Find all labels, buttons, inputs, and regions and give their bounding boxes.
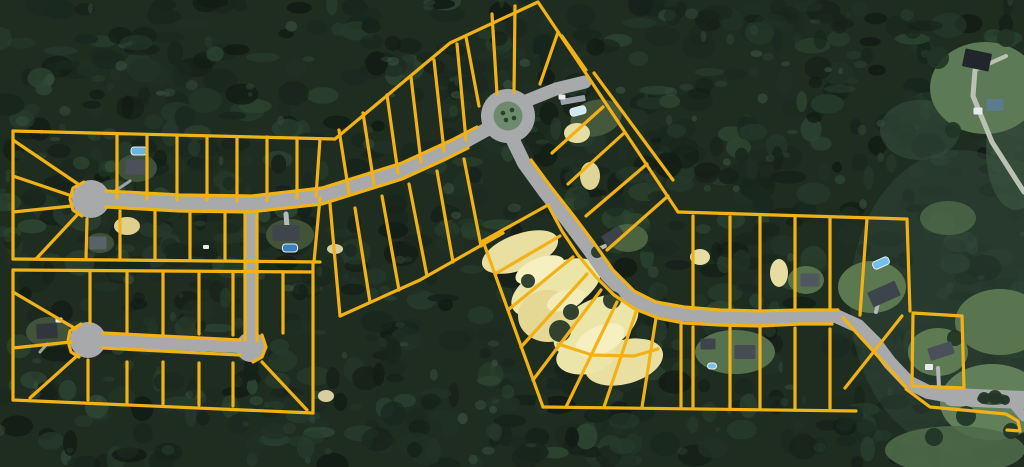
forest-texture	[221, 137, 250, 150]
forest-texture	[128, 58, 161, 82]
forest-texture	[588, 409, 611, 422]
forest-texture	[770, 171, 806, 184]
forest-texture	[189, 157, 214, 172]
forest-texture	[479, 348, 491, 358]
concrete-pad	[203, 245, 209, 249]
forest-texture	[147, 4, 165, 24]
forest-texture	[205, 36, 213, 47]
forest-texture	[736, 284, 757, 293]
tree-cluster	[693, 294, 707, 308]
forest-texture	[666, 124, 686, 138]
forest-texture	[609, 457, 622, 466]
forest-texture	[645, 130, 661, 139]
forest-texture	[783, 152, 790, 157]
forest-texture	[144, 114, 163, 129]
forest-texture	[74, 415, 92, 427]
forest-texture	[796, 91, 807, 112]
forest-texture	[385, 36, 401, 51]
forest-texture	[222, 387, 251, 398]
forest-texture	[689, 24, 712, 44]
forest-texture	[669, 138, 699, 155]
forest-texture	[170, 312, 176, 322]
forest-texture	[33, 381, 38, 390]
forest-texture	[490, 424, 501, 442]
forest-texture	[526, 443, 537, 448]
forest-texture	[383, 437, 396, 445]
forest-texture	[811, 94, 844, 113]
forest-texture	[821, 333, 850, 358]
lot-boundary-line	[514, 6, 515, 92]
forest-texture	[429, 410, 460, 425]
forest-texture	[188, 140, 201, 156]
forest-texture	[331, 23, 345, 36]
forest-texture	[733, 185, 740, 191]
forest-texture	[22, 189, 46, 208]
forest-texture	[665, 87, 677, 97]
forest-texture	[305, 419, 330, 427]
forest-texture	[836, 418, 852, 431]
lot-boundary-line	[86, 219, 87, 259]
forest-texture	[746, 158, 758, 180]
forest-texture	[787, 253, 794, 262]
concrete-pad	[925, 364, 933, 370]
forest-texture	[490, 366, 496, 377]
forest-texture	[502, 358, 515, 368]
forest-texture	[30, 371, 39, 379]
forest-texture	[460, 265, 483, 273]
forest-texture	[438, 299, 453, 311]
forest-texture	[88, 3, 93, 13]
forest-texture	[44, 46, 77, 55]
forest-texture	[167, 41, 183, 66]
forest-texture	[395, 256, 406, 264]
forest-texture	[115, 318, 136, 331]
forest-texture	[685, 8, 698, 19]
forest-texture	[793, 32, 802, 43]
forest-texture	[789, 434, 817, 460]
forest-texture	[468, 306, 494, 324]
forest-texture	[695, 68, 725, 76]
forest-texture	[766, 154, 775, 162]
forest-texture	[32, 358, 41, 364]
forest-texture	[5, 173, 10, 183]
sand-clearing	[770, 259, 788, 287]
forest-texture	[703, 5, 733, 20]
forest-texture	[874, 430, 892, 441]
forest-texture	[614, 423, 623, 434]
grass-clearing	[920, 201, 976, 235]
forest-texture	[770, 235, 796, 255]
forest-texture	[100, 217, 109, 226]
forest-texture	[750, 25, 759, 35]
forest-texture	[138, 87, 150, 102]
forest-texture	[858, 125, 866, 136]
forest-texture	[454, 75, 458, 86]
forest-texture	[676, 1, 686, 17]
forest-texture	[105, 161, 116, 173]
forest-texture	[666, 115, 672, 125]
swimming-pool	[708, 363, 717, 369]
forest-texture	[698, 439, 728, 458]
forest-texture	[469, 455, 478, 465]
forest-texture	[156, 366, 161, 374]
sand-clearing	[114, 217, 140, 235]
forest-texture	[270, 339, 290, 354]
forest-texture	[783, 297, 816, 310]
forest-texture	[787, 130, 798, 134]
forest-texture	[278, 81, 309, 105]
tree-cluster	[897, 252, 913, 268]
forest-texture	[859, 199, 867, 209]
forest-texture	[679, 91, 713, 111]
forest-texture	[477, 328, 506, 342]
island-tree	[512, 116, 517, 121]
forest-texture	[234, 318, 243, 329]
forest-texture	[59, 106, 70, 116]
forest-texture	[715, 428, 719, 432]
forest-texture	[702, 402, 717, 423]
forest-texture	[628, 208, 634, 219]
forest-texture	[59, 380, 76, 400]
forest-texture	[245, 185, 250, 194]
forest-texture	[24, 104, 40, 116]
forest-texture	[864, 13, 887, 25]
forest-texture	[122, 95, 134, 118]
forest-texture	[603, 191, 625, 216]
island-tree	[510, 108, 515, 113]
forest-texture	[174, 19, 209, 28]
forest-texture	[692, 116, 697, 122]
forest-texture	[386, 374, 404, 382]
forest-texture	[243, 421, 249, 427]
forest-texture	[50, 137, 61, 141]
tree-cluster	[1000, 395, 1010, 405]
forest-texture	[438, 330, 470, 351]
island-tree	[504, 118, 509, 123]
forest-texture	[430, 369, 438, 380]
forest-texture	[704, 185, 712, 192]
forest-texture	[796, 183, 830, 205]
forest-texture	[334, 393, 348, 411]
forest-texture	[535, 139, 548, 144]
forest-texture	[247, 379, 258, 395]
forest-texture	[861, 437, 875, 462]
forest-texture	[44, 0, 76, 19]
forest-texture	[189, 88, 222, 113]
forest-texture	[344, 244, 357, 257]
forest-texture	[793, 421, 804, 431]
forest-texture	[120, 35, 153, 50]
road	[88, 340, 250, 347]
forest-texture	[824, 67, 832, 72]
forest-texture	[178, 293, 183, 298]
forest-texture	[66, 229, 70, 234]
forest-texture	[342, 352, 347, 359]
forest-texture	[246, 83, 254, 89]
forest-texture	[489, 406, 497, 414]
forest-texture	[807, 112, 822, 123]
forest-texture	[17, 219, 46, 233]
forest-texture	[423, 4, 434, 10]
forest-texture	[724, 68, 746, 79]
forest-texture	[701, 31, 707, 42]
forest-texture	[749, 67, 759, 76]
forest-texture	[629, 51, 649, 66]
forest-texture	[698, 379, 710, 393]
forest-texture	[616, 87, 626, 94]
forest-texture	[900, 9, 913, 21]
forest-texture	[452, 157, 483, 167]
forest-texture	[420, 394, 441, 408]
forest-texture	[780, 398, 788, 407]
forest-texture	[271, 155, 286, 174]
roundabout-island	[494, 102, 523, 131]
forest-texture	[156, 91, 165, 96]
tree-cluster	[636, 325, 650, 339]
forest-texture	[407, 442, 422, 457]
forest-texture	[89, 90, 104, 100]
forest-texture	[617, 138, 628, 161]
forest-texture	[908, 20, 942, 31]
forest-texture	[695, 224, 710, 233]
forest-texture	[366, 269, 387, 284]
forest-texture	[781, 61, 790, 66]
forest-texture	[92, 75, 106, 82]
forest-texture	[307, 87, 339, 104]
forest-texture	[449, 106, 458, 117]
house	[273, 225, 300, 241]
forest-texture	[835, 175, 846, 184]
forest-texture	[175, 106, 195, 128]
forest-texture	[103, 377, 115, 382]
forest-texture	[405, 345, 416, 350]
tree-cluster	[988, 390, 1002, 404]
forest-texture	[206, 46, 223, 61]
forest-texture	[371, 120, 385, 131]
forest-texture	[219, 156, 224, 165]
forest-texture	[468, 167, 482, 183]
forest-texture	[492, 399, 499, 404]
forest-texture	[2, 196, 7, 203]
forest-texture	[305, 457, 311, 464]
tree-cluster	[521, 274, 535, 288]
forest-texture	[577, 52, 589, 57]
forest-texture	[325, 448, 332, 455]
forest-texture	[852, 1, 868, 17]
forest-texture	[648, 283, 667, 300]
forest-texture	[187, 391, 193, 400]
forest-texture	[665, 260, 691, 270]
forest-texture	[133, 423, 153, 444]
forest-texture	[644, 26, 680, 47]
forest-texture	[94, 282, 120, 292]
tree-cluster	[549, 320, 571, 342]
forest-texture	[283, 423, 296, 435]
house	[987, 99, 1004, 111]
sand-clearing	[580, 162, 600, 190]
forest-texture	[687, 416, 698, 433]
forest-texture	[286, 21, 297, 32]
forest-texture	[707, 19, 720, 29]
forest-texture	[877, 152, 884, 161]
forest-texture	[739, 124, 767, 141]
forest-texture	[344, 273, 350, 282]
forest-texture	[860, 37, 881, 46]
forest-texture	[459, 218, 485, 227]
subdivision-aerial-svg[interactable]	[0, 0, 1024, 467]
forest-texture	[818, 14, 835, 24]
forest-texture	[482, 447, 495, 455]
forest-texture	[219, 112, 246, 120]
forest-texture	[727, 420, 757, 440]
forest-texture	[107, 82, 114, 91]
forest-texture	[286, 57, 305, 78]
house	[701, 339, 716, 350]
forest-texture	[130, 299, 147, 310]
forest-texture	[695, 170, 718, 183]
forest-texture	[488, 340, 499, 347]
forest-texture	[715, 81, 728, 87]
forest-texture	[361, 311, 394, 333]
forest-texture	[381, 401, 407, 426]
forest-texture	[42, 77, 53, 87]
forest-texture	[443, 183, 454, 194]
swimming-pool	[283, 244, 298, 252]
forest-texture	[1, 415, 33, 436]
forest-texture	[451, 212, 461, 220]
forest-texture	[186, 80, 198, 90]
forest-texture	[492, 360, 498, 367]
forest-texture	[196, 411, 209, 425]
forest-texture	[361, 19, 380, 34]
forest-texture	[559, 160, 578, 170]
driveway	[938, 368, 939, 387]
forest-texture	[246, 53, 280, 62]
forest-texture	[67, 448, 74, 453]
forest-texture	[143, 317, 156, 327]
tree-cluster	[927, 47, 949, 69]
forest-texture	[4, 234, 12, 242]
house	[735, 345, 756, 359]
forest-texture	[833, 19, 854, 28]
forest-texture	[159, 409, 172, 414]
forest-texture	[809, 19, 820, 24]
forest-texture	[644, 89, 648, 100]
forest-texture	[751, 50, 763, 57]
forest-texture	[313, 330, 326, 335]
forest-texture	[658, 370, 691, 393]
forest-texture	[679, 84, 693, 91]
sand-clearing	[318, 390, 334, 402]
forest-texture	[223, 44, 249, 55]
forest-texture	[83, 101, 101, 109]
forest-texture	[303, 56, 315, 61]
forest-texture	[248, 92, 252, 96]
swimming-pool	[131, 147, 147, 155]
forest-texture	[609, 413, 640, 430]
forest-texture	[204, 387, 223, 401]
forest-texture	[309, 415, 315, 423]
forest-texture	[740, 393, 758, 418]
forest-texture	[161, 238, 179, 256]
satellite-plat-map[interactable]	[0, 0, 1024, 467]
concrete-pad	[559, 95, 566, 100]
forest-texture	[754, 14, 788, 31]
forest-texture	[74, 34, 98, 44]
forest-texture	[534, 54, 539, 58]
forest-texture	[762, 53, 774, 61]
forest-texture	[846, 51, 860, 60]
forest-texture	[216, 223, 239, 234]
forest-texture	[668, 221, 685, 231]
forest-texture	[223, 176, 235, 190]
forest-texture	[824, 85, 856, 93]
forest-texture	[854, 61, 867, 68]
forest-texture	[838, 68, 842, 75]
forest-texture	[802, 395, 806, 405]
forest-texture	[317, 266, 323, 277]
forest-texture	[250, 396, 264, 405]
forest-texture	[586, 39, 604, 56]
forest-texture	[832, 162, 842, 173]
forest-texture	[752, 196, 774, 212]
forest-texture	[387, 57, 399, 66]
forest-texture	[550, 117, 561, 140]
forest-texture	[194, 221, 206, 227]
forest-texture	[503, 80, 513, 90]
forest-texture	[366, 51, 388, 75]
forest-texture	[430, 211, 442, 223]
forest-texture	[247, 434, 264, 458]
forest-texture	[846, 12, 851, 17]
forest-texture	[368, 34, 374, 40]
forest-texture	[475, 400, 486, 410]
house	[36, 323, 58, 339]
forest-texture	[648, 266, 659, 277]
tree-cluster	[925, 428, 943, 446]
forest-texture	[735, 148, 748, 164]
forest-texture	[507, 203, 521, 212]
forest-texture	[47, 144, 70, 158]
forest-texture	[718, 168, 738, 185]
forest-texture	[886, 154, 896, 172]
forest-texture	[813, 443, 826, 453]
forest-texture	[779, 361, 783, 373]
forest-texture	[38, 432, 64, 450]
forest-texture	[723, 159, 731, 166]
forest-texture	[650, 432, 680, 456]
forest-texture	[341, 284, 365, 296]
forest-texture	[868, 65, 886, 76]
forest-texture	[351, 403, 361, 411]
forest-texture	[379, 338, 388, 347]
forest-texture	[88, 47, 117, 61]
forest-texture	[753, 222, 780, 237]
forest-texture	[201, 393, 206, 403]
forest-texture	[386, 338, 401, 363]
forest-texture	[814, 30, 827, 50]
forest-texture	[519, 59, 530, 67]
forest-texture	[188, 280, 221, 289]
tree-cluster	[563, 304, 579, 320]
forest-texture	[710, 137, 724, 157]
forest-texture	[235, 376, 242, 387]
forest-texture	[77, 62, 98, 76]
forest-texture	[373, 363, 384, 386]
forest-texture	[610, 438, 635, 454]
forest-texture	[565, 427, 579, 448]
forest-texture	[217, 169, 230, 178]
